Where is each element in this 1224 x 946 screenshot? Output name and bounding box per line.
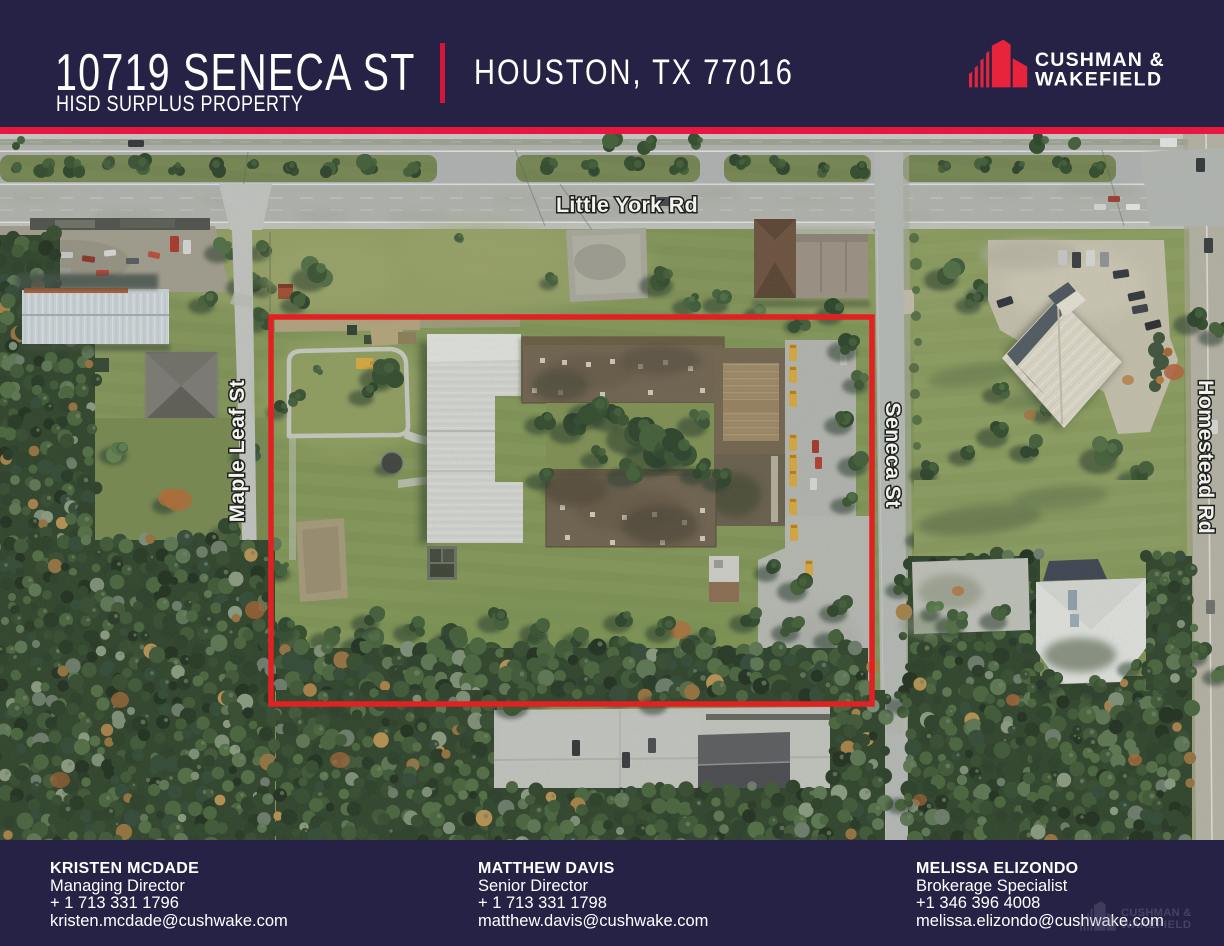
svg-text:WAKEFIELD: WAKEFIELD [1121, 919, 1192, 931]
svg-text:WAKEFIELD: WAKEFIELD [1035, 69, 1162, 91]
svg-text:CUSHMAN &: CUSHMAN & [1121, 907, 1192, 919]
